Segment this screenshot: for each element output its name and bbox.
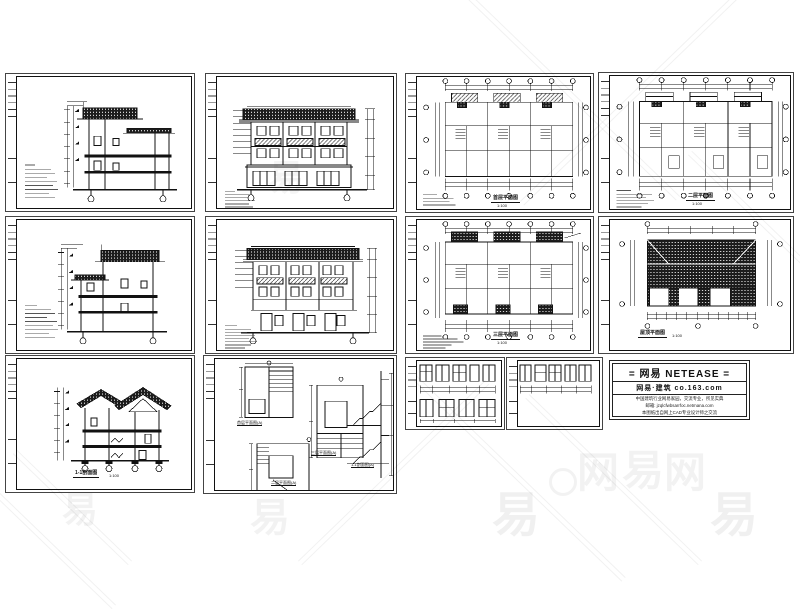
floor-plan-drawing (417, 77, 590, 209)
drawing-scale: 1:100 (497, 341, 507, 345)
slogan-line: 中国建筑行业网易家园，交流专业，所见实典 (613, 395, 746, 402)
sheet-frame (16, 76, 192, 209)
sheet-edge-strip (601, 75, 609, 210)
sheet-edge-strip (601, 219, 609, 351)
roof-plan-drawing (610, 220, 790, 350)
drawing-title: 屋顶平面图 (638, 331, 667, 338)
section-drawing (17, 359, 191, 489)
drawing-scale: 1:100 (672, 334, 682, 338)
stair-detail-title: 二层平面图(A) (271, 481, 296, 486)
watermark-glyph: 易 (492, 492, 540, 540)
sheet-edge-strip (206, 358, 214, 491)
sheet-edge-strip (408, 219, 416, 351)
sheet-frame (517, 360, 600, 427)
sheet-frame (216, 219, 394, 351)
watermark-glyph: 易 (250, 498, 290, 538)
sheet-details-b (506, 357, 603, 430)
sheet-frame: 首层平面图(A) 二层平面图(A) 三层平面图(A) 1-1剖面图(A) (214, 358, 394, 491)
sheet-frame: 二层平面图 1:100 (609, 75, 791, 210)
sheet-side-elevation-b (5, 216, 195, 354)
sheet-frame: 首层平面图 1:100 (416, 76, 591, 210)
sheet-roof-plan: 屋顶平面图 1:100 (598, 216, 794, 354)
title-block-frame: = 网易 NETEASE = 网易·建筑 co.163.com 中国建筑行业网易… (612, 363, 747, 417)
sheet-edge-strip (208, 76, 216, 209)
watermark-glyph: 易 (710, 492, 758, 540)
sheet-floor-plan-1: 首层平面图 1:100 (405, 73, 594, 213)
sheet-rear-elevation (205, 216, 397, 354)
sheet-frame: 1-1剖面图 1:100 (16, 358, 192, 490)
watermark-glyph: 网 (577, 452, 619, 494)
sheet-front-elevation (205, 73, 397, 212)
floor-plan-drawing (610, 76, 790, 209)
drawing-scale: 1:100 (497, 204, 507, 208)
cad-sheet-collage: { "page": {"background_hex": "#ffffff", … (0, 0, 800, 567)
drawing-title: 二层平面图 (686, 194, 715, 201)
floor-plan-drawing (417, 220, 590, 350)
sheet-frame (216, 76, 394, 209)
sheet-frame: 三层平面图 1:100 (416, 219, 591, 351)
sheet-details-a (405, 357, 505, 430)
sheet-edge-strip (208, 219, 216, 351)
watermark-glyph: 网 (664, 452, 706, 494)
stair-detail-title: 1-1剖面图(A) (351, 463, 374, 468)
contact-line: 邮箱: jzqlcfwbsarrfoc.netmana.com (613, 402, 746, 409)
sheet-edge-strip (8, 358, 16, 490)
sheet-edge-strip (509, 360, 517, 427)
sheet-frame (416, 360, 502, 427)
side-elevation-drawing (17, 220, 191, 350)
sheet-frame: 屋顶平面图 1:100 (609, 219, 791, 351)
drawing-scale: 1:100 (109, 474, 119, 478)
sheet-side-elevation-a (5, 73, 195, 212)
sheet-floor-plan-3: 三层平面图 1:100 (405, 216, 594, 354)
sheet-frame (16, 219, 192, 351)
drawing-scale: 1:100 (692, 202, 702, 206)
sheet-edge-strip (408, 76, 416, 210)
brand-line: = 网易 NETEASE = (613, 364, 746, 382)
sheet-edge-strip (408, 360, 416, 427)
sheet-edge-strip (8, 219, 16, 351)
detail-drawing (417, 361, 501, 426)
front-elevation-drawing (217, 77, 393, 208)
sheet-floor-plan-2: 二层平面图 1:100 (598, 72, 794, 213)
sheet-stair-details: 首层平面图(A) 二层平面图(A) 三层平面图(A) 1-1剖面图(A) (203, 355, 397, 494)
title-block: = 网易 NETEASE = 网易·建筑 co.163.com 中国建筑行业网易… (609, 360, 750, 420)
drawing-title: 首层平面图 (491, 196, 520, 203)
sheet-section-1-1: 1-1剖面图 1:100 (5, 355, 195, 493)
sheet-edge-strip (8, 76, 16, 209)
note-line: 本图纸出自网上CAD专业设计师之交流 (613, 409, 746, 416)
watermark-logo-ring (549, 468, 577, 496)
watermark-glyph: 易 (62, 492, 98, 528)
watermark-glyph: 易 (622, 450, 664, 492)
detail-drawing (518, 361, 599, 426)
side-elevation-drawing (17, 77, 191, 208)
stair-detail-title: 三层平面图(A) (311, 451, 336, 456)
stair-detail-title: 首层平面图(A) (237, 421, 262, 426)
drawing-title: 三层平面图 (491, 333, 520, 340)
drawing-title: 1-1剖面图 (73, 471, 99, 478)
rear-elevation-drawing (217, 220, 393, 350)
site-line: 网易·建筑 co.163.com (613, 382, 746, 395)
